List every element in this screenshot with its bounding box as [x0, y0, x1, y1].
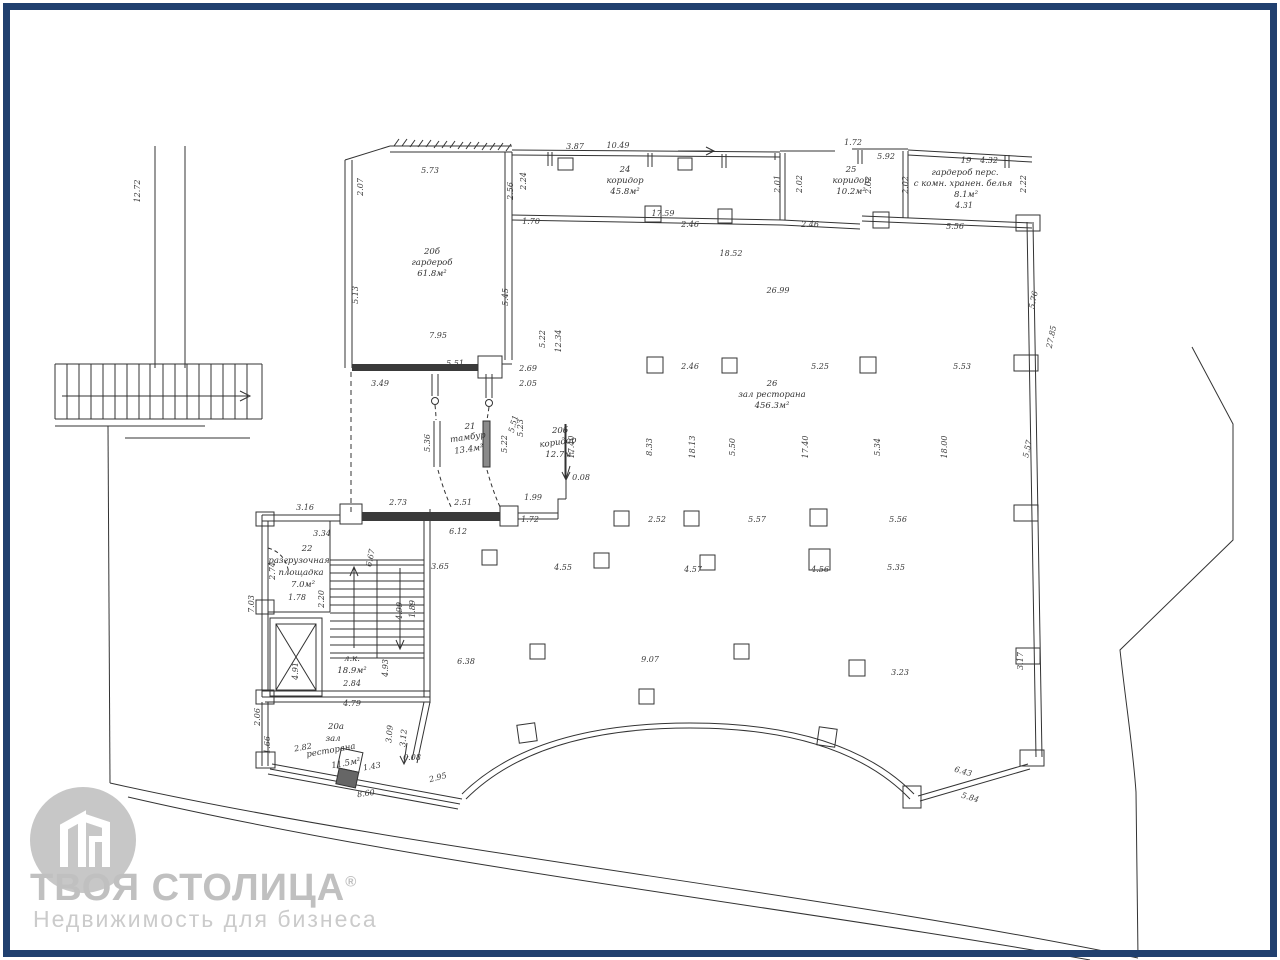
dimension-label: 2.02 [865, 176, 873, 194]
room-label: гардероб перс. [931, 169, 998, 178]
dimension-label: 4.99 [396, 602, 404, 620]
room-label: 61.8м² [417, 270, 446, 279]
dimension-label: 1.89 [409, 600, 417, 618]
room-label: ресторана [306, 743, 356, 760]
dimension-label: 6.67 [365, 548, 377, 567]
dimension-label: 5.76 [1028, 290, 1040, 309]
room-label: 7.0м² [291, 581, 315, 590]
dimension-label: 2.95 [428, 772, 447, 784]
dimension-label: 2.73 [389, 499, 407, 507]
dimension-label: 4.79 [343, 700, 361, 708]
dimension-label: 3.17 [1017, 652, 1025, 670]
dimension-label: 6.43 [953, 766, 972, 779]
dimension-label: 12.34 [555, 330, 563, 353]
dimension-label: 0.08 [403, 754, 421, 762]
dimension-label: 17.40 [568, 436, 576, 459]
dimension-label: 6.38 [457, 658, 475, 666]
dimension-label: 2.05 [519, 380, 537, 388]
dimension-label: 7.95 [429, 332, 447, 340]
dimension-label: 6.12 [449, 528, 467, 536]
room-label: гардероб [412, 259, 453, 268]
dimension-label: 17.59 [652, 210, 675, 218]
dimension-label: 5.36 [424, 434, 432, 452]
dimension-label: 2.20 [318, 590, 326, 608]
dimension-label: 5.73 [421, 167, 439, 175]
dimension-label: 18.00 [941, 436, 949, 459]
room-label: зал ресторана [738, 391, 805, 400]
dimension-label: 4.56 [811, 566, 829, 574]
dimension-label: 4.32 [980, 157, 998, 165]
dimension-label: 2.69 [519, 365, 537, 373]
dimension-label: 5.45 [502, 288, 510, 306]
room-label: 25 [846, 166, 857, 175]
dimension-label: 3.09 [385, 725, 395, 743]
dimension-label: 5.56 [889, 516, 907, 524]
dimension-label: 5.51 [446, 360, 464, 368]
dimension-label: 4.93 [382, 659, 390, 677]
dimension-label: 5.34 [874, 438, 882, 456]
dimension-label: 1.99 [524, 494, 542, 502]
room-label: коридор [606, 177, 643, 186]
dimension-label: 18.13 [689, 436, 697, 459]
dimension-label: 2.02 [796, 175, 804, 193]
room-label: 45.8м² [610, 188, 639, 197]
dimension-label: 7.03 [248, 595, 256, 613]
dimension-label: 5.84 [960, 792, 979, 805]
room-label: 24 [620, 166, 631, 175]
dimension-label: 1.66 [264, 736, 272, 754]
room-label: зал [325, 735, 340, 744]
room-label: 20б [424, 248, 440, 257]
dimension-label: 2.46 [681, 221, 699, 229]
dimension-label: 3.16 [296, 504, 314, 512]
dimension-label: 2.24 [520, 172, 528, 190]
dimension-label: 5.57 [748, 516, 766, 524]
dimension-label: 3.23 [891, 669, 909, 677]
dimension-label: 2.51 [454, 499, 472, 507]
dimension-label: 0.08 [572, 474, 590, 482]
room-label: 456.3м² [755, 402, 790, 411]
dimension-label: 12.72 [134, 180, 142, 203]
dimension-label: 2.46 [681, 363, 699, 371]
dimension-label: 5.35 [887, 564, 905, 572]
dimension-label: 26.99 [767, 287, 790, 295]
dimension-label: 8.33 [646, 438, 654, 456]
dimension-label: 5.92 [877, 153, 895, 161]
plan-labels: 3.8710.4924коридор45.8м²17.592.462.462.0… [0, 0, 1280, 960]
dimension-label: 3.34 [313, 530, 331, 538]
dimension-label: 2.56 [507, 182, 515, 200]
room-label: площадка [278, 569, 323, 578]
room-label: л.к. [344, 655, 360, 664]
dimension-label: 1.72 [844, 139, 862, 147]
dimension-label: 17.40 [802, 436, 810, 459]
dimension-label: 1.70 [522, 218, 540, 226]
room-label: 20а [328, 723, 344, 732]
dimension-label: 5.22 [501, 435, 509, 453]
dimension-label: 5.57 [1022, 439, 1034, 458]
dimension-label: 5.13 [352, 286, 360, 304]
room-label: 8.1м² [954, 191, 978, 200]
dimension-label: 2.02 [902, 176, 910, 194]
dimension-label: 1.43 [363, 762, 382, 773]
dimension-label: 5.53 [953, 363, 971, 371]
dimension-label: 4.57 [684, 566, 702, 574]
room-label: 18.9м² [337, 667, 366, 676]
room-label: 19 [961, 157, 972, 166]
dimension-label: 3.12 [399, 729, 409, 747]
dimension-label: 4.31 [955, 202, 973, 210]
dimension-label: 1.78 [288, 594, 306, 602]
dimension-label: 27.85 [1046, 325, 1059, 349]
dimension-label: 3.87 [566, 143, 584, 151]
room-label: 20б [552, 427, 568, 436]
room-label: 21 [465, 423, 476, 432]
dimension-label: 5.50 [729, 438, 737, 456]
dimension-label: 5.22 [539, 330, 547, 348]
dimension-label: 5.56 [946, 223, 964, 231]
dimension-label: 2.07 [357, 178, 365, 196]
dimension-label: 2.52 [648, 516, 666, 524]
dimension-label: 2.84 [343, 680, 361, 688]
dimension-label: 2.46 [801, 221, 819, 229]
dimension-label: 2.01 [774, 175, 782, 193]
dimension-label: 3.65 [431, 563, 449, 571]
room-label: 26 [767, 380, 778, 389]
dimension-label: 4.91 [292, 662, 300, 680]
dimension-label: 18.52 [720, 250, 743, 258]
dimension-label: 2.74 [269, 562, 277, 580]
room-label: 10.2м² [836, 188, 865, 197]
room-label: разгрузочная [268, 557, 329, 566]
dimension-label: 3.49 [371, 380, 389, 388]
room-label: 13.4м² [454, 444, 484, 457]
dimension-label: 2.22 [1020, 175, 1028, 193]
dimension-label: 5.25 [811, 363, 829, 371]
dimension-label: 8.60 [357, 789, 376, 799]
room-label: с комн. хранен. белья [914, 180, 1013, 189]
room-label: 22 [302, 545, 313, 554]
dimension-label: 9.07 [641, 656, 659, 664]
floor-plan-page: ТВОЯ СТОЛИЦА® Недвижимость для бизнеса [0, 0, 1280, 960]
dimension-label: 1.72 [521, 516, 539, 524]
dimension-label: 4.55 [554, 564, 572, 572]
dimension-label: 2.06 [254, 708, 262, 726]
dimension-label: 10.49 [607, 142, 630, 150]
room-label: 11.5м² [331, 757, 361, 770]
